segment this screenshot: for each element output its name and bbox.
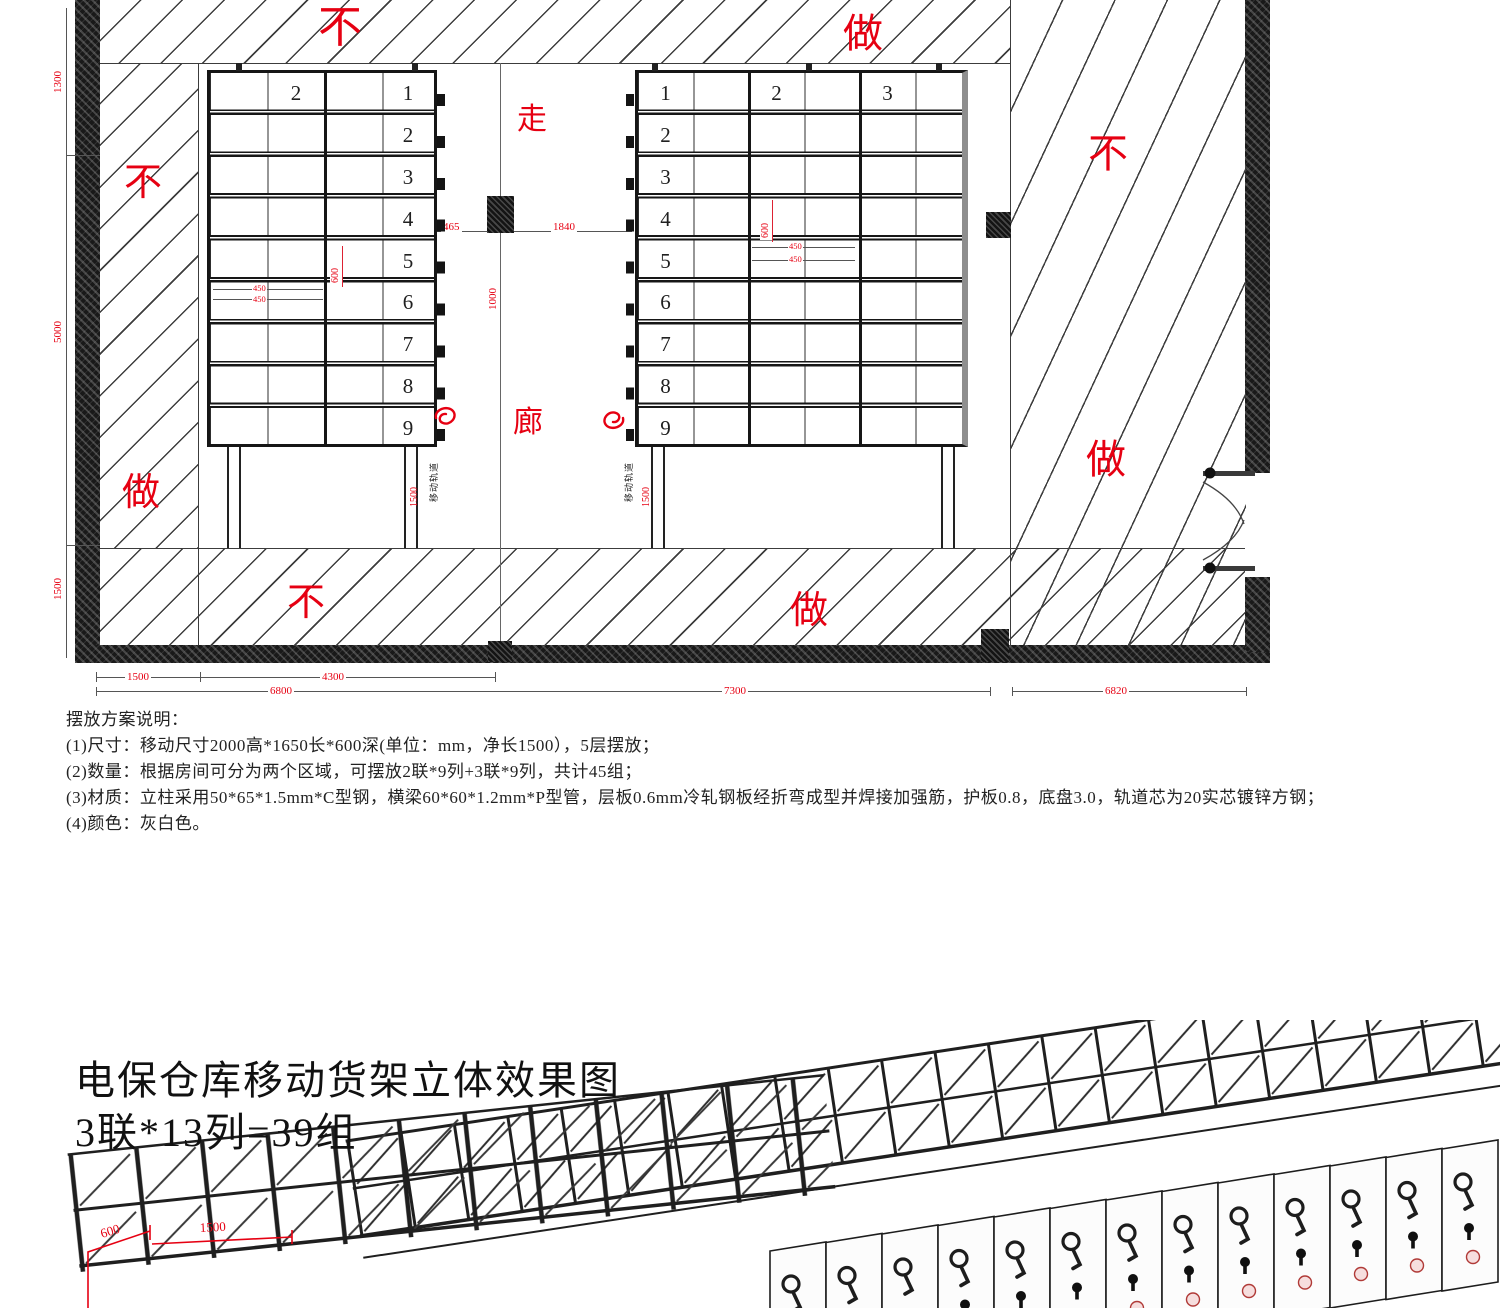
bottom-dim-line-2 (96, 691, 990, 692)
structural-column-center (487, 196, 514, 233)
frame-tick (806, 63, 812, 71)
left-unit-depth-line (342, 246, 343, 287)
left-unit-pitch-dim-2: 450 (252, 295, 267, 304)
region-label-no-left: 不 (124, 164, 162, 202)
corridor-label-bottom: 廊 (513, 408, 543, 438)
iso-title-line1: 电保仓库移动货架立体效果图 (75, 1048, 621, 1106)
dim-1840: 1840 (551, 221, 577, 233)
dim-1500-bottom: 1500 (125, 671, 151, 683)
right-unit-pitch-dim-1: 450 (788, 242, 803, 251)
right-unit-depth-dim: 600 (760, 221, 772, 240)
dim-6820-bottom: 6820 (1103, 685, 1129, 697)
rail-track (941, 447, 955, 548)
notes-title: 摆放方案说明： (66, 707, 1324, 733)
row-number: 9 (382, 410, 434, 446)
shelf-unit-left: 2 1 2 3 4 5 6 7 8 9 (207, 70, 437, 447)
column-dimension-line (437, 231, 632, 232)
row-number: 7 (382, 326, 434, 362)
row-number: 8 (638, 368, 693, 404)
row-number: 2 (382, 117, 434, 153)
crank-hooks-right-unit (626, 72, 634, 445)
door-swing-bottom (1203, 520, 1244, 560)
frame-tick (652, 63, 658, 71)
section-divider (324, 73, 327, 444)
structural-column-bottom-right (981, 629, 1009, 662)
wall-right-upper (1245, 0, 1270, 473)
frame-tick (412, 63, 418, 71)
region-label-no-top: 不 (318, 6, 362, 50)
region-label-no-bottom: 不 (287, 584, 325, 622)
right-unit-pitch-dim-2: 450 (788, 255, 803, 264)
row-number: 6 (638, 284, 693, 320)
row-number: 9 (638, 410, 693, 446)
rail-track (651, 447, 665, 548)
dim-7300-bottom: 7300 (722, 685, 748, 697)
right-unit-pitch-line-1 (752, 247, 855, 248)
track-length-dim: 1500 (641, 487, 652, 507)
frame-tick (936, 63, 942, 71)
floor-plan: 不 做 不 做 不 做 不 做 走 廊 465 1840 1000 1300 5… (0, 0, 1500, 705)
door-hinge-top (1205, 468, 1216, 479)
placement-notes: 摆放方案说明： (1)尺寸：移动尺寸2000高*1650长*600深(单位：mm… (66, 707, 1324, 837)
crank-hooks-left-unit (437, 72, 445, 445)
region-label-do-bottom: 做 (790, 592, 828, 630)
dim-left-top: 1300 (52, 69, 64, 95)
row-number: 1 (638, 75, 693, 111)
handwheel-scribble-icon (597, 408, 627, 432)
wall-left (75, 0, 100, 663)
row-number: 3 (638, 159, 693, 195)
dim-6800-bottom: 6800 (268, 685, 294, 697)
iso-dim-length: 1500 (199, 1219, 226, 1235)
dim-left-bottom: 1500 (52, 576, 64, 602)
double-door (1140, 440, 1270, 660)
corridor-label-top: 走 (517, 105, 547, 135)
handwheel-scribble-icon (432, 404, 462, 428)
bottom-dim-tick (200, 672, 201, 682)
row-number: 7 (638, 326, 693, 362)
region-divider-line (198, 63, 199, 645)
bottom-dim-tick (96, 687, 97, 696)
notes-item-3: (3)材质：立柱采用50*65*1.5mm*C型钢，横梁60*60*1.2mm*… (66, 785, 1324, 811)
door-swing-top (1203, 482, 1244, 524)
row-number: 5 (382, 243, 434, 279)
right-unit-depth-line (772, 200, 773, 242)
left-dim-tick-2 (66, 545, 100, 546)
left-unit-pitch-line-1 (213, 289, 323, 290)
bottom-dim-line (96, 677, 495, 678)
iso-title-line2: 3联*13列=39组 (75, 1100, 358, 1158)
row-number: 2 (638, 117, 693, 153)
bottom-dim-tick (96, 672, 97, 682)
structural-column-bottom-mid (488, 641, 512, 662)
row-number: 4 (382, 201, 434, 237)
left-unit-pitch-line-2 (213, 299, 323, 300)
row-number: 6 (382, 284, 434, 320)
region-label-do-right: 做 (1086, 440, 1126, 480)
section-divider (859, 73, 862, 444)
structural-column-right (986, 212, 1011, 238)
dim-1000: 1000 (487, 286, 499, 312)
notes-item-2: (2)数量：根据房间可分为两个区域，可摆放2联*9列+3联*9列，共计45组； (66, 759, 1324, 785)
wall-bottom (75, 645, 1270, 663)
track-name-label: 移动轨道 (622, 462, 635, 502)
bottom-dim-tick (495, 672, 496, 682)
section-label-2: 2 (267, 75, 325, 111)
track-length-dim: 1500 (409, 487, 420, 507)
right-unit-pitch-line-2 (752, 260, 855, 261)
dim-left-middle: 5000 (52, 319, 64, 345)
row-number: 1 (382, 75, 434, 111)
bottom-dim-tick (1012, 687, 1013, 696)
region-label-do-left: 做 (122, 474, 160, 512)
left-unit-depth-dim: 600 (330, 266, 342, 285)
dim-4300-bottom: 4300 (320, 671, 346, 683)
row-number: 5 (638, 243, 693, 279)
bottom-dim-tick (1246, 687, 1247, 696)
bottom-dim-line-right (1012, 691, 1247, 692)
left-unit-pitch-dim-1: 450 (252, 284, 267, 293)
rail-track (227, 447, 241, 548)
end-panel-row (770, 1140, 1498, 1308)
frame-tick (236, 63, 242, 71)
left-dim-tick-1 (66, 155, 100, 156)
notes-item-1: (1)尺寸：移动尺寸2000高*1650长*600深(单位：mm，净长1500）… (66, 733, 1324, 759)
section-divider (748, 73, 751, 444)
door-hinge-bottom (1205, 563, 1216, 574)
bottom-dim-tick (990, 687, 991, 696)
corridor-centerline (500, 63, 501, 660)
row-number: 4 (638, 201, 693, 237)
track-name-label: 移动轨道 (427, 462, 440, 502)
region-label-do-top: 做 (843, 14, 883, 54)
row-number: 8 (382, 368, 434, 404)
row-number: 3 (382, 159, 434, 195)
left-dim-line (66, 8, 67, 658)
region-label-no-right: 不 (1088, 134, 1128, 174)
section-label-3: 3 (860, 75, 915, 111)
section-label-2: 2 (749, 75, 804, 111)
notes-item-4: (4)颜色：灰白色。 (66, 811, 1324, 837)
drawing-page: 不 做 不 做 不 做 不 做 走 廊 465 1840 1000 1300 5… (0, 0, 1500, 1308)
